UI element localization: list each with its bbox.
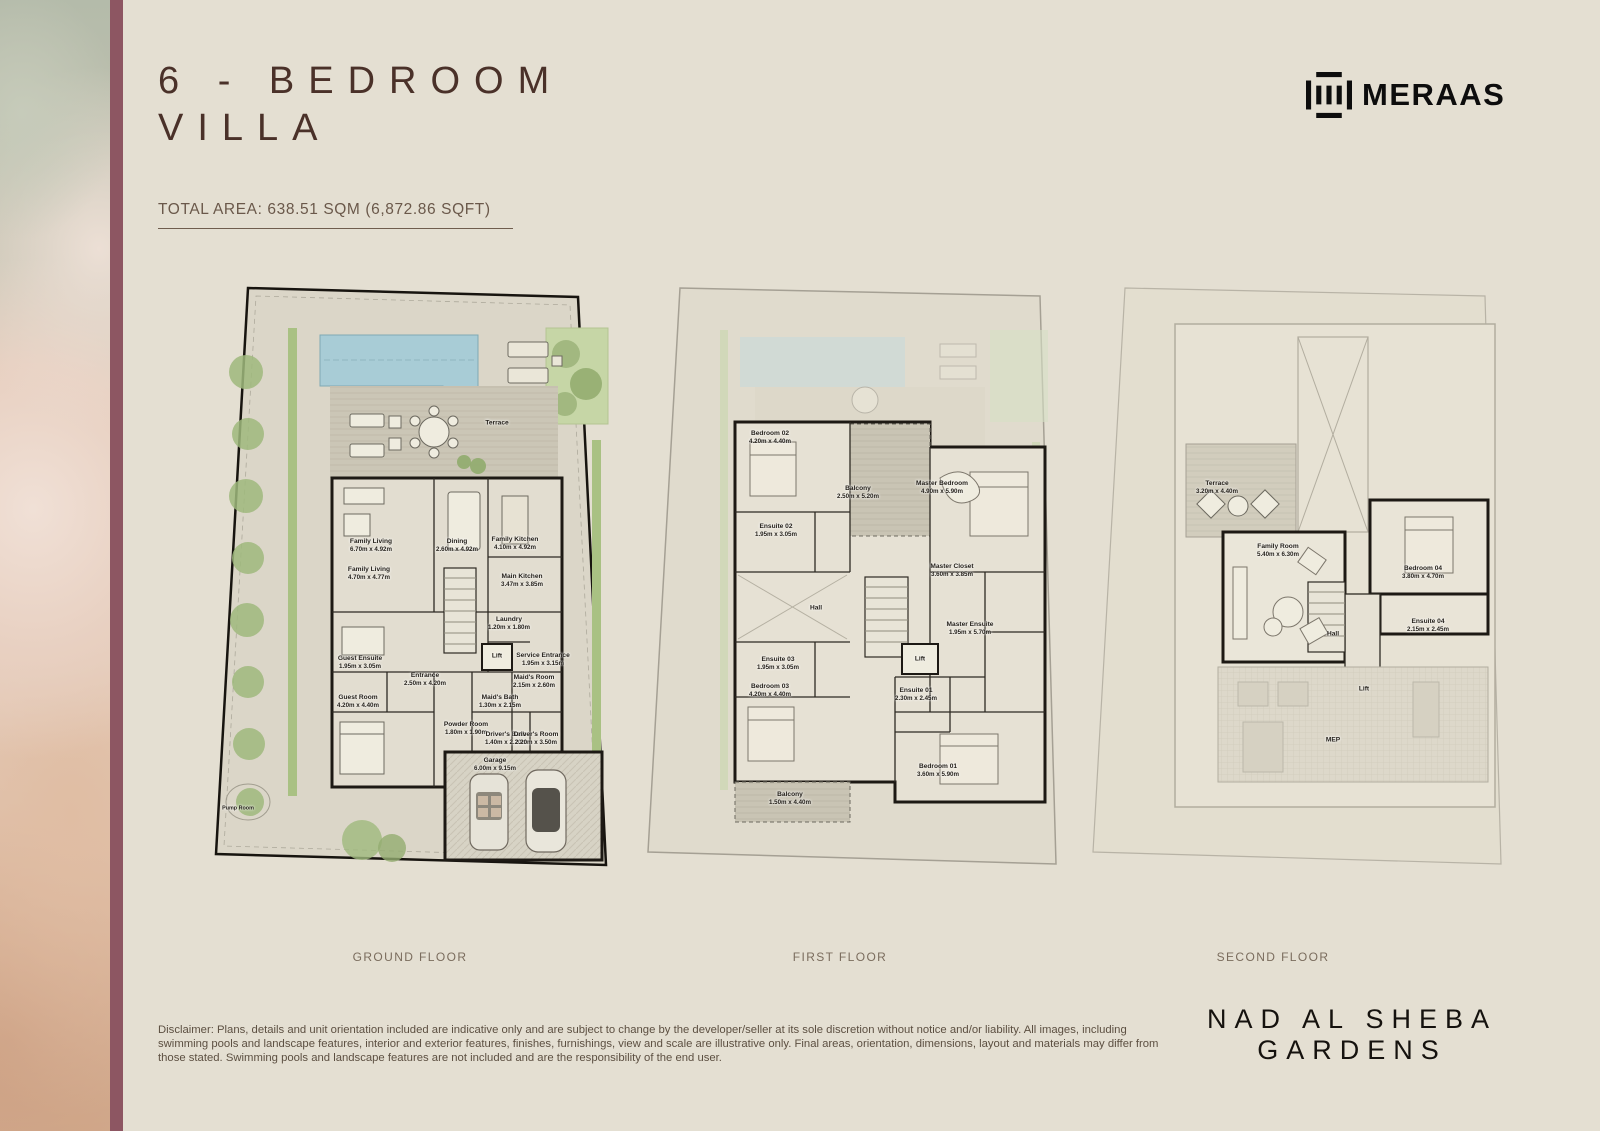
room-name: Ensuite 04	[1407, 618, 1449, 626]
room-name: Service Entrance	[516, 652, 570, 660]
room-name: Lift	[915, 655, 925, 663]
room-label-sf-family-room: Family Room5.40m x 6.30m	[1257, 543, 1299, 558]
room-label-ff-hall: Hall	[810, 604, 822, 612]
room-name: Bedroom 02	[749, 430, 791, 438]
room-name: Family Kitchen	[492, 536, 539, 544]
room-name: Lift	[1359, 685, 1369, 693]
first-floor-plan: Bedroom 024.20m x 4.40mBalcony2.50m x 5.…	[640, 282, 1070, 872]
room-label-ff-ensuite-03: Ensuite 031.95m x 3.05m	[757, 656, 799, 671]
room-name: MEP	[1326, 736, 1340, 744]
room-label-gf-pump-room: Pump Room	[222, 805, 254, 813]
room-label-ff-ensuite-01: Ensuite 012.30m x 2.45m	[895, 687, 937, 702]
second-floor-room-labels: Terrace3.20m x 4.40mFamily Room5.40m x 6…	[1083, 282, 1513, 872]
room-dimensions: 1.95m x 3.15m	[516, 659, 570, 666]
room-dimensions: 3.60m x 3.85m	[930, 570, 973, 577]
room-label-ff-master-bedroom: Master Bedroom4.90m x 5.90m	[916, 480, 968, 495]
room-dimensions: 1.95m x 3.05m	[755, 530, 797, 537]
room-name: Garage	[474, 757, 516, 765]
room-name: Ensuite 02	[755, 523, 797, 531]
room-dimensions: 1.50m x 4.40m	[769, 798, 811, 805]
room-label-ff-bedroom-02: Bedroom 024.20m x 4.40m	[749, 430, 791, 445]
room-dimensions: 2.30m x 2.45m	[895, 694, 937, 701]
room-label-gf-maids-room: Maid's Room2.15m x 2.60m	[513, 674, 555, 689]
room-label-sf-hall: Hall	[1327, 630, 1339, 638]
room-dimensions: 5.40m x 6.30m	[1257, 550, 1299, 557]
room-dimensions: 3.60m x 5.90m	[917, 770, 959, 777]
room-name: Master Bedroom	[916, 480, 968, 488]
room-label-ff-lift: Lift	[915, 655, 925, 663]
room-name: Family Living	[348, 566, 390, 574]
brand-name: MERAAS	[1362, 77, 1505, 113]
room-label-sf-mep: MEP	[1326, 736, 1340, 744]
room-dimensions: 4.10m x 4.92m	[492, 543, 539, 550]
room-name: Guest Room	[337, 694, 379, 702]
room-dimensions: 1.80m x 1.90m	[444, 728, 488, 735]
room-dimensions: 4.20m x 4.40m	[749, 437, 791, 444]
room-label-gf-entrance: Entrance2.50m x 4.20m	[404, 672, 446, 687]
vertical-divider-bar	[110, 0, 123, 1131]
ground-floor-plan: TerraceFamily Living6.70m x 4.92mFamily …	[212, 282, 632, 872]
room-name: Master Ensuite	[947, 621, 994, 629]
room-label-gf-terrace: Terrace	[485, 419, 508, 427]
room-label-ff-ensuite-02: Ensuite 021.95m x 3.05m	[755, 523, 797, 538]
room-dimensions: 1.20m x 1.80m	[488, 623, 530, 630]
room-name: Balcony	[837, 485, 879, 493]
room-dimensions: 6.00m x 9.15m	[474, 764, 516, 771]
room-label-ff-balcony-2: Balcony1.50m x 4.40m	[769, 791, 811, 806]
room-name: Powder Room	[444, 721, 488, 729]
room-label-gf-family-living-2: Family Living4.70m x 4.77m	[348, 566, 390, 581]
room-label-gf-garage: Garage6.00m x 9.15m	[474, 757, 516, 772]
room-name: Maid's Bath	[479, 694, 521, 702]
room-name: Bedroom 03	[749, 683, 791, 691]
room-dimensions: 2.15m x 2.45m	[1407, 625, 1449, 632]
room-label-gf-guest-room: Guest Room4.20m x 4.40m	[337, 694, 379, 709]
room-dimensions: 4.90m x 5.90m	[916, 487, 968, 494]
room-name: Bedroom 01	[917, 763, 959, 771]
room-label-gf-main-kitchen: Main Kitchen3.47m x 3.85m	[501, 573, 543, 588]
room-dimensions: 1.95m x 5.70m	[947, 628, 994, 635]
room-dimensions: 4.20m x 4.40m	[337, 701, 379, 708]
brand-logo: MERAAS	[1306, 72, 1505, 118]
room-dimensions: 1.95m x 3.05m	[757, 663, 799, 670]
project-name-line2: GARDENS	[1257, 1035, 1447, 1065]
room-name: Master Closet	[930, 563, 973, 571]
room-name: Main Kitchen	[501, 573, 543, 581]
page-title: 6 - BEDROOMVILLA	[158, 58, 563, 152]
room-label-ff-bedroom-03: Bedroom 034.20m x 4.40m	[749, 683, 791, 698]
room-name: Laundry	[488, 616, 530, 624]
room-dimensions: 4.20m x 4.40m	[749, 690, 791, 697]
room-label-gf-guest-ensuite: Guest Ensuite1.95m x 3.05m	[338, 655, 382, 670]
room-dimensions: 3.47m x 3.85m	[501, 580, 543, 587]
caption-second-floor: SECOND FLOOR	[1217, 950, 1330, 964]
room-label-sf-ensuite-04: Ensuite 042.15m x 2.45m	[1407, 618, 1449, 633]
room-dimensions: 2.50m x 4.20m	[404, 679, 446, 686]
room-name: Family Living	[350, 538, 392, 546]
room-dimensions: 1.95m x 3.05m	[338, 662, 382, 669]
first-floor-room-labels: Bedroom 024.20m x 4.40mBalcony2.50m x 5.…	[640, 282, 1070, 872]
room-dimensions: 3.20m x 4.40m	[1196, 487, 1238, 494]
project-name: NAD AL SHEBAGARDENS	[1207, 1004, 1497, 1066]
room-label-gf-laundry: Laundry1.20m x 1.80m	[488, 616, 530, 631]
room-name: Guest Ensuite	[338, 655, 382, 663]
room-label-ff-bedroom-01: Bedroom 013.60m x 5.90m	[917, 763, 959, 778]
room-name: Balcony	[769, 791, 811, 799]
room-dimensions: 4.70m x 4.77m	[348, 573, 390, 580]
room-label-ff-master-ensuite: Master Ensuite1.95m x 5.70m	[947, 621, 994, 636]
room-label-ff-master-closet: Master Closet3.60m x 3.85m	[930, 563, 973, 578]
project-name-line1: NAD AL SHEBA	[1207, 1004, 1497, 1034]
room-dimensions: 2.20m x 3.50m	[514, 738, 559, 745]
room-name: Hall	[810, 604, 822, 612]
room-name: Family Room	[1257, 543, 1299, 551]
floorplan-brochure-page: 6 - BEDROOMVILLA TOTAL AREA: 638.51 SQM …	[0, 0, 1600, 1131]
room-label-sf-lift: Lift	[1359, 685, 1369, 693]
room-name: Ensuite 03	[757, 656, 799, 664]
room-name: Entrance	[404, 672, 446, 680]
room-label-gf-family-kitchen: Family Kitchen4.10m x 4.92m	[492, 536, 539, 551]
room-name: Lift	[492, 652, 502, 660]
disclaimer-text: Disclaimer: Plans, details and unit orie…	[158, 1024, 1163, 1065]
room-label-gf-lift: Lift	[492, 652, 502, 660]
room-dimensions: 1.30m x 2.15m	[479, 701, 521, 708]
room-name: Dining	[436, 538, 478, 546]
room-dimensions: 2.50m x 5.20m	[837, 492, 879, 499]
meraas-logo-icon	[1306, 72, 1352, 118]
room-label-gf-powder-room: Powder Room1.80m x 1.90m	[444, 721, 488, 736]
page-title-line2: VILLA	[158, 107, 332, 149]
room-dimensions: 3.80m x 4.70m	[1402, 572, 1444, 579]
room-dimensions: 2.15m x 2.60m	[513, 681, 555, 688]
total-area-label: TOTAL AREA: 638.51 SQM (6,872.86 SQFT)	[158, 201, 513, 229]
room-name: Hall	[1327, 630, 1339, 638]
room-name: Ensuite 01	[895, 687, 937, 695]
flower-photo-strip	[0, 0, 110, 1131]
ground-floor-room-labels: TerraceFamily Living6.70m x 4.92mFamily …	[212, 282, 632, 872]
room-label-gf-dining: Dining2.60m x 4.92m	[436, 538, 478, 553]
room-dimensions: 6.70m x 4.92m	[350, 545, 392, 552]
room-name: Bedroom 04	[1402, 565, 1444, 573]
caption-ground-floor: GROUND FLOOR	[353, 950, 468, 964]
room-label-gf-service-entrance: Service Entrance1.95m x 3.15m	[516, 652, 570, 667]
room-label-ff-balcony-1: Balcony2.50m x 5.20m	[837, 485, 879, 500]
room-label-gf-drivers-room: Driver's Room2.20m x 3.50m	[514, 731, 559, 746]
second-floor-plan: Terrace3.20m x 4.40mFamily Room5.40m x 6…	[1083, 282, 1513, 872]
caption-first-floor: FIRST FLOOR	[793, 950, 888, 964]
room-name: Terrace	[1196, 480, 1238, 488]
page-title-line1: 6 - BEDROOM	[158, 60, 563, 102]
room-dimensions: 2.60m x 4.92m	[436, 545, 478, 552]
room-label-gf-maids-bath: Maid's Bath1.30m x 2.15m	[479, 694, 521, 709]
room-name: Pump Room	[222, 805, 254, 813]
room-label-sf-terrace: Terrace3.20m x 4.40m	[1196, 480, 1238, 495]
room-name: Driver's Room	[514, 731, 559, 739]
room-name: Terrace	[485, 419, 508, 427]
room-label-sf-bedroom-04: Bedroom 043.80m x 4.70m	[1402, 565, 1444, 580]
room-name: Maid's Room	[513, 674, 555, 682]
room-label-gf-family-living-1: Family Living6.70m x 4.92m	[350, 538, 392, 553]
